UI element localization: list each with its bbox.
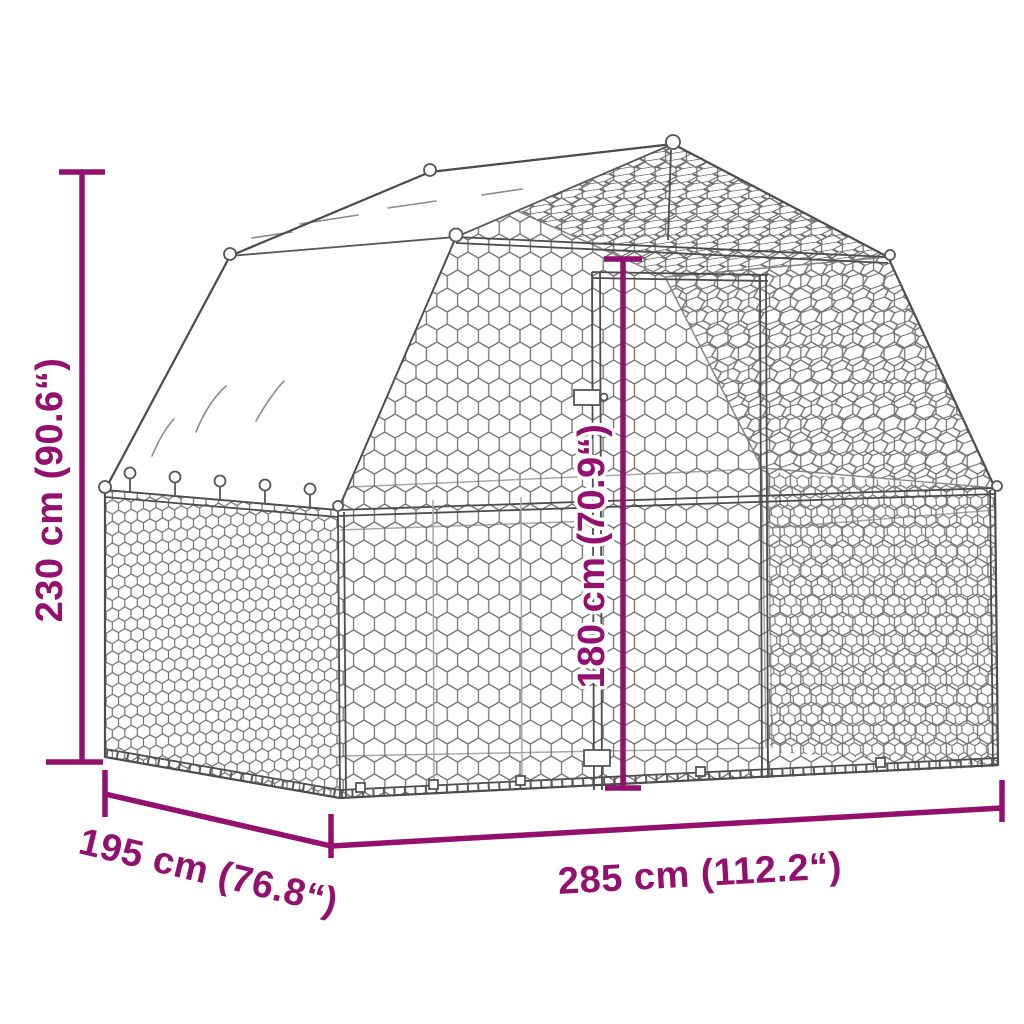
- dimension-depth: 195 cm (76.8“): [75, 770, 342, 923]
- dimension-width: 285 cm (112.2“): [331, 780, 1002, 903]
- dimension-width-label: 285 cm (112.2“): [557, 845, 843, 903]
- product-dimension-diagram: 230 cm (90.6“) 180 cm (70.9“) 195 cm (76…: [0, 0, 1024, 1024]
- front-wall-mesh: [338, 488, 998, 798]
- chicken-run-structure: [99, 135, 1002, 798]
- diagram-canvas: 230 cm (90.6“) 180 cm (70.9“) 195 cm (76…: [0, 0, 1024, 1024]
- dimension-height-label: 230 cm (90.6“): [29, 358, 71, 623]
- dimension-depth-label: 195 cm (76.8“): [75, 821, 342, 924]
- door-hinge-top: [574, 390, 600, 405]
- dimension-door-height-label: 180 cm (70.9“): [571, 424, 613, 689]
- left-wall-mesh: [105, 490, 340, 798]
- dimension-height: 230 cm (90.6“): [29, 172, 105, 762]
- door-hinge-bottom: [584, 750, 610, 766]
- door-latch-knob: [601, 394, 608, 401]
